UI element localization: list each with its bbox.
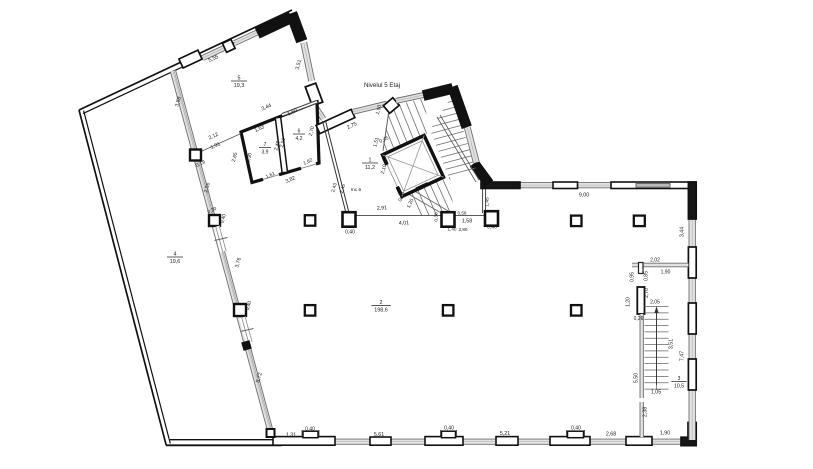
svg-text:0,40: 0,40 [345, 230, 355, 236]
svg-text:1,40: 1,40 [448, 227, 457, 232]
svg-text:3,44: 3,44 [680, 227, 686, 237]
svg-text:19,3: 19,3 [234, 83, 245, 89]
svg-text:2,68: 2,68 [606, 432, 616, 438]
svg-text:9,00: 9,00 [579, 193, 589, 199]
svg-text:19,6: 19,6 [170, 259, 181, 265]
svg-text:2,70: 2,70 [644, 288, 650, 298]
svg-text:2,91: 2,91 [377, 205, 388, 212]
svg-text:7,47: 7,47 [680, 351, 686, 361]
svg-text:0,26: 0,26 [634, 316, 644, 322]
svg-text:2,38: 2,38 [643, 407, 649, 417]
svg-text:0,58: 0,58 [458, 211, 467, 216]
svg-text:5,61: 5,61 [374, 432, 384, 438]
svg-text:5: 5 [238, 75, 241, 81]
svg-text:1,45: 1,45 [485, 197, 491, 207]
svg-text:198,6: 198,6 [374, 308, 388, 314]
svg-text:Nivelul 5 Etaj: Nivelul 5 Etaj [364, 82, 400, 89]
svg-text:3: 3 [678, 376, 681, 382]
svg-text:2,05: 2,05 [650, 300, 660, 306]
svg-text:6: 6 [298, 128, 301, 134]
svg-text:Inc.6: Inc.6 [351, 187, 362, 193]
svg-text:2,02: 2,02 [650, 258, 660, 264]
svg-text:11,2: 11,2 [365, 165, 375, 171]
svg-text:3,51: 3,51 [669, 339, 675, 349]
svg-text:4,2: 4,2 [296, 136, 303, 142]
svg-text:0,40: 0,40 [487, 225, 497, 231]
svg-text:1: 1 [369, 157, 372, 163]
svg-text:0,85: 0,85 [644, 271, 650, 281]
svg-text:2: 2 [380, 300, 383, 306]
svg-text:1,58: 1,58 [462, 219, 472, 225]
svg-text:4,01: 4,01 [399, 220, 410, 227]
svg-text:10,5: 10,5 [674, 384, 684, 390]
svg-text:0,36: 0,36 [434, 212, 440, 222]
svg-text:4: 4 [174, 251, 177, 257]
svg-text:1,05: 1,05 [651, 390, 661, 396]
svg-text:1,90: 1,90 [660, 431, 670, 437]
svg-text:2,80: 2,80 [459, 227, 468, 232]
svg-text:5,21: 5,21 [500, 431, 510, 437]
svg-text:5,50: 5,50 [634, 373, 640, 383]
svg-text:1,20: 1,20 [626, 297, 632, 307]
svg-text:0,40: 0,40 [305, 427, 315, 433]
svg-text:0,95: 0,95 [630, 272, 636, 282]
svg-text:7: 7 [264, 142, 267, 148]
svg-text:1,90: 1,90 [661, 270, 671, 276]
svg-text:0,40: 0,40 [571, 426, 581, 432]
svg-text:3,9: 3,9 [262, 150, 269, 156]
svg-text:1,31: 1,31 [286, 433, 296, 439]
svg-text:0,40: 0,40 [444, 426, 454, 432]
